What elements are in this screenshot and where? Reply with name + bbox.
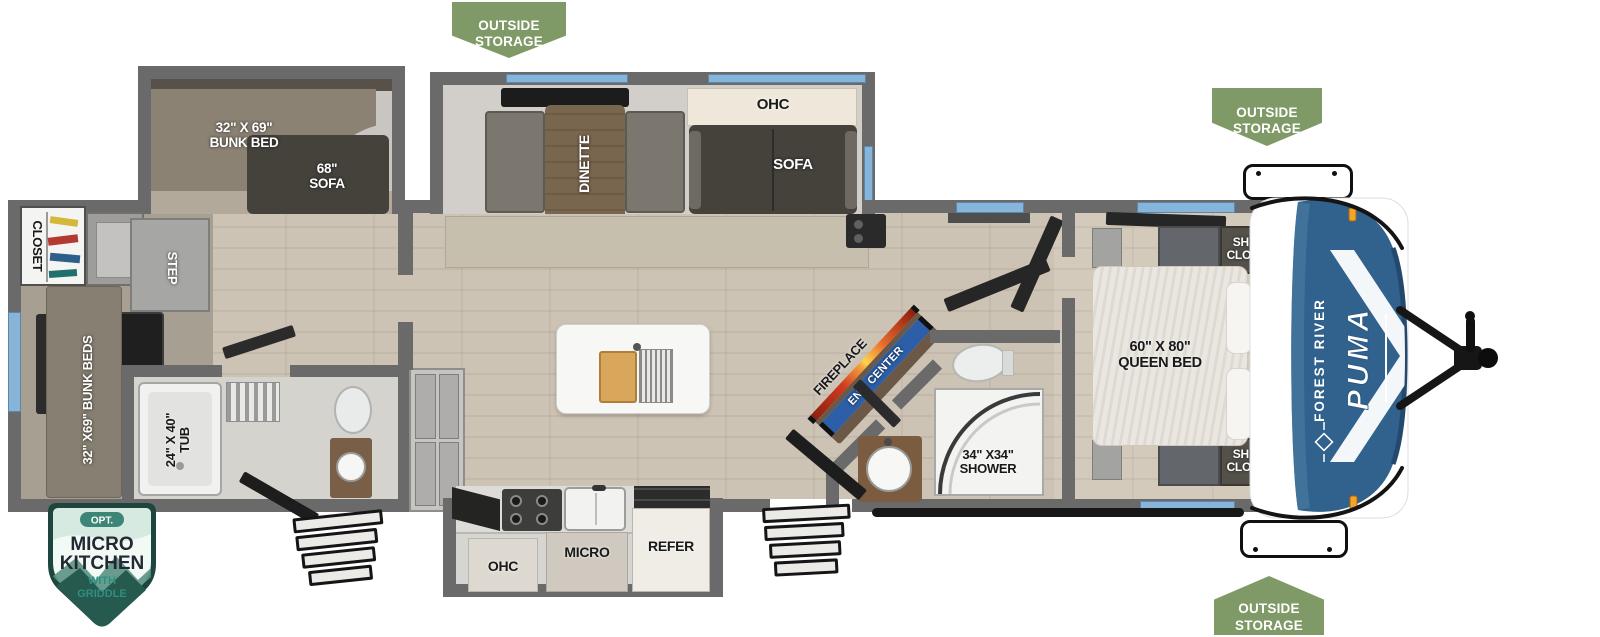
micro-sub-1: WITH (88, 575, 116, 587)
window-dinette-side (864, 146, 873, 202)
kitchen-sink (564, 487, 626, 531)
refer-label: REFER (636, 538, 706, 556)
closet-clothes-teal (49, 269, 77, 278)
living-rug (445, 216, 869, 268)
micro-title-2: KITCHEN (60, 553, 144, 574)
window-hall (956, 202, 1024, 213)
main-shower (934, 388, 1044, 496)
marker-light-top (1349, 208, 1356, 221)
rear-entry-steps (292, 510, 383, 592)
rv-floorplan: 32" X 69" BUNK BED 68" SOFA DINETTE OHC … (0, 0, 1600, 637)
badge-micro-kitchen: OPT. MICRO KITCHEN WITH GRIDDLE (34, 496, 170, 636)
kitchen-ohc-label: OHC (470, 558, 536, 576)
burner-2 (536, 495, 548, 507)
island-faucet (633, 343, 641, 351)
dinette-label: DINETTE (576, 104, 594, 214)
main-vanity (858, 436, 922, 502)
closet-clothes-red (48, 234, 79, 246)
bunk-slide-wall-left (138, 66, 151, 214)
bed-step-bottom (1092, 440, 1122, 480)
rack-bolt (1332, 171, 1337, 176)
micro-title-1: MICRO (70, 534, 133, 555)
bunk-slide-room: 32" X 69" BUNK BED 68" SOFA (151, 79, 392, 214)
micro-opt-label: OPT. (91, 516, 113, 527)
body-wall-top-2 (392, 200, 443, 213)
main-sink-faucet (884, 438, 892, 446)
dinette-slide-room: DINETTE OHC SOFA (443, 85, 862, 214)
rear-vanity (330, 438, 372, 498)
brand-model-label: PUMA (1342, 306, 1375, 410)
bedroom-wall-1 (1062, 213, 1075, 257)
micro-label: MICRO (550, 544, 624, 562)
burner-4 (536, 513, 548, 525)
awning-rail (872, 508, 1244, 517)
main-toilet-tank (1002, 350, 1014, 376)
front-cap: FOREST RIVER PUMA (1248, 190, 1498, 530)
rear-bath-wall-left (122, 365, 134, 511)
rack-bolt (1253, 547, 1258, 552)
rear-bunk-beds-label: 32" X69" BUNK BEDS (78, 305, 98, 495)
body-wall-top-3 (862, 200, 1305, 213)
hall-cabinet-knob-1 (854, 220, 863, 229)
hall-wall-stub-1 (398, 213, 413, 275)
hall-cabinet-knob-2 (854, 234, 863, 243)
rear-sink (336, 452, 366, 482)
main-shower-label: 34" X34" SHOWER (938, 446, 1038, 478)
island-cutting-board (599, 351, 637, 403)
window-dinette-right (708, 74, 866, 83)
kitchen-faucet (592, 485, 606, 491)
main-bath-wall-top (930, 330, 1060, 343)
sofa-armrest-left (689, 131, 701, 209)
bedroom-wall-2 (1062, 298, 1075, 512)
queen-bed-label: 60" X 80" QUEEN BED (1100, 336, 1220, 376)
dinette-bench-right (625, 111, 685, 213)
sink-divider (595, 493, 597, 525)
step-label: STEP (164, 236, 180, 300)
rear-bath-shelves (226, 382, 280, 422)
micro-kitchen-shield: OPT. MICRO KITCHEN WITH GRIDDLE (34, 496, 170, 636)
kitchen-island (556, 324, 710, 414)
closet-label: CLOSET (29, 215, 45, 277)
window-rear (8, 312, 21, 412)
badge-outside-storage-front-top: OUTSIDE STORAGE (1212, 88, 1322, 146)
micro-sub-2: GRIDDLE (77, 588, 127, 600)
rear-bath-wall-top-2 (290, 365, 410, 377)
dinette-slide-wall-left (430, 72, 443, 214)
kitchen-slide-wall-right (710, 498, 723, 597)
badge-outside-storage-top: OUTSIDE STORAGE (452, 2, 566, 58)
main-entry-steps (762, 504, 848, 586)
hall-wall-stub-2 (398, 322, 413, 370)
closet-clothes-blue (50, 253, 81, 264)
rack-bolt (1256, 171, 1261, 176)
rear-toilet (334, 386, 372, 434)
main-sink (866, 446, 912, 492)
hall-cabinet (846, 214, 886, 248)
closet-clothes-yellow (50, 216, 79, 227)
burner-1 (510, 495, 522, 507)
rack-bolt (1327, 547, 1332, 552)
bed-step-top (1092, 228, 1122, 268)
bunk-bed-label: 32" X 69" BUNK BED (179, 119, 309, 153)
window-bedroom-top (1137, 202, 1235, 213)
burner-3 (510, 513, 522, 525)
sofa-ohc-label: OHC (743, 95, 803, 115)
badge-outside-storage-front-bottom: OUTSIDE STORAGE (1214, 576, 1324, 635)
brand-make-label: FOREST RIVER (1312, 298, 1327, 422)
island-sink-grate (639, 349, 673, 403)
micro-box (546, 532, 628, 592)
bunk-slide-wall-right (392, 66, 405, 214)
hitch (1400, 310, 1498, 406)
sofa-armrest-right (845, 131, 857, 209)
window-dinette-left (506, 74, 628, 83)
stove (502, 489, 562, 531)
rear-bath-wall-top-1 (122, 365, 222, 377)
shower-glass-arc (936, 390, 1046, 498)
hall-ledge (948, 213, 1030, 223)
bunk-sofa-label: 68" SOFA (301, 161, 353, 193)
bunk-slide-wall-top (138, 66, 405, 79)
closet-rod (46, 212, 48, 282)
rear-tub-label: 24" X 40" TUB (162, 385, 194, 495)
dinette-bench-left (485, 111, 545, 213)
sofa-label: SOFA (763, 155, 823, 175)
